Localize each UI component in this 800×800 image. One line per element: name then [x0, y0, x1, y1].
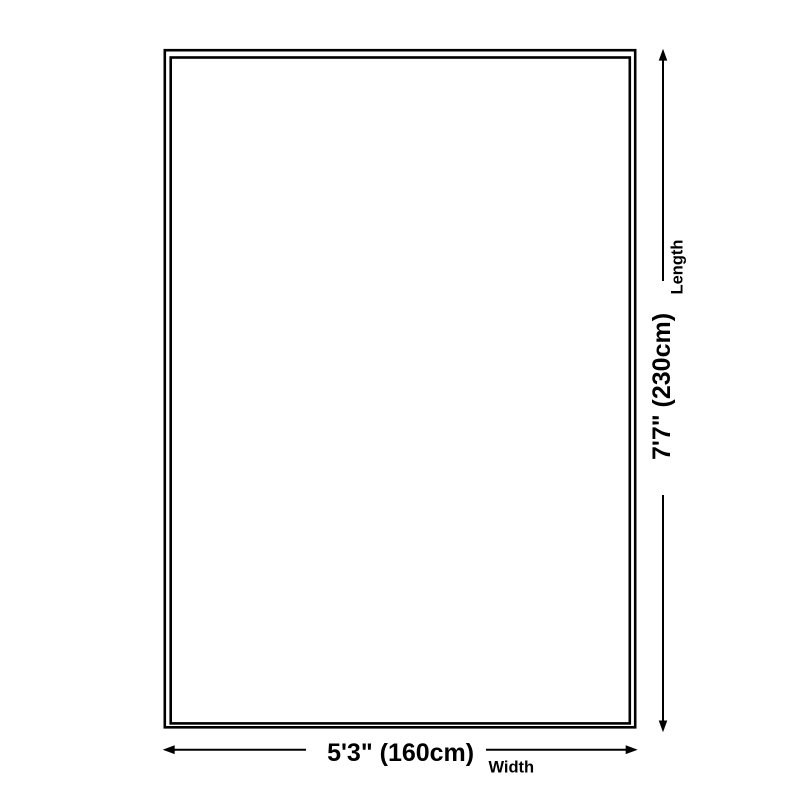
svg-text:7'7" (230cm): 7'7" (230cm) [648, 313, 676, 460]
svg-text:Width: Width [488, 759, 534, 777]
svg-text:5'3" (160cm): 5'3" (160cm) [327, 739, 474, 767]
svg-text:Length: Length [669, 240, 687, 295]
